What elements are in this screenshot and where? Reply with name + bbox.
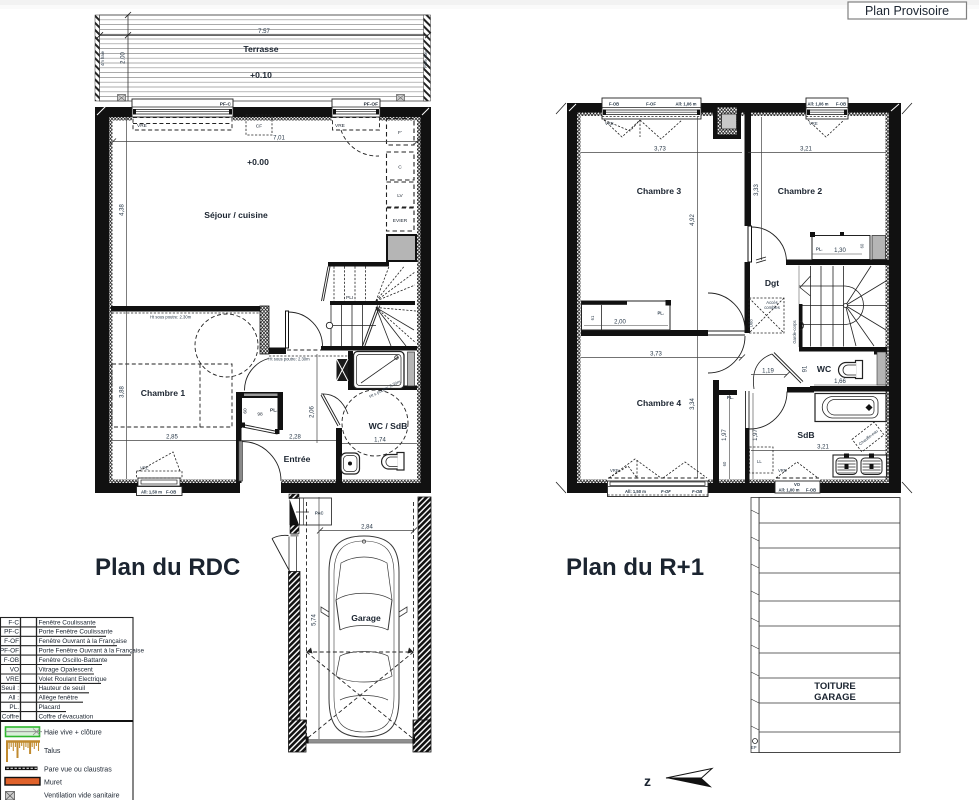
svg-text:All: 1,50 m: All: 1,50 m [625,489,646,494]
svg-text:Chambre 2: Chambre 2 [778,186,823,196]
svg-text:Muret: Muret [44,780,62,787]
svg-text:D88: D88 [749,319,754,327]
svg-text:VRE: VRE [610,468,619,473]
svg-text:Ht sous poutre: 2.30m: Ht sous poutre: 2.30m [150,315,192,320]
svg-text:Plan du RDC: Plan du RDC [95,554,240,581]
svg-text:3,21: 3,21 [817,445,829,451]
svg-text:TOITURE: TOITURE [814,681,856,692]
svg-text:Porte Fenêtre Ouvrant à la Fra: Porte Fenêtre Ouvrant à la Française [39,648,145,655]
svg-text:WC / SdB: WC / SdB [369,421,408,431]
svg-text:Seuil :: Seuil : [1,685,19,692]
svg-text:3,34: 3,34 [690,398,696,410]
svg-text:Hauteur de seuil: Hauteur de seuil [39,685,86,692]
svg-text:3,33: 3,33 [754,184,760,196]
svg-text:Séjour / cuisine: Séjour / cuisine [204,210,268,220]
svg-text:GARAGE: GARAGE [814,692,856,703]
svg-text:LV: LV [397,193,403,199]
svg-text:3,73: 3,73 [654,147,666,153]
svg-text:Allège fenêtre: Allège fenêtre [39,695,79,702]
svg-text:Coffre d'évacuation: Coffre d'évacuation [39,713,94,720]
svg-text:Fenêtre Ouvrant à la Française: Fenêtre Ouvrant à la Française [39,638,128,645]
svg-text:VRE: VRE [137,123,147,129]
svg-text:61: 61 [590,315,595,320]
svg-text:Fenêtre Coulissante: Fenêtre Coulissante [39,619,97,626]
svg-text:LL: LL [757,459,762,464]
svg-text:Plan du R+1: Plan du R+1 [566,554,704,581]
svg-text:PL.: PL. [270,408,277,414]
svg-text:Porte Fenêtre Coulissante: Porte Fenêtre Coulissante [39,629,114,636]
svg-text:Fenêtre Oscillo-Battante: Fenêtre Oscillo-Battante [39,657,108,664]
svg-text:EVIER: EVIER [393,218,408,224]
svg-text:Placard: Placard [39,704,61,711]
svg-text:5,74: 5,74 [312,614,318,626]
svg-text:VRE: VRE [335,123,345,129]
svg-text:Vitrage Opalescent: Vitrage Opalescent [39,666,93,673]
svg-text:PL.: PL. [657,311,664,316]
svg-text:98: 98 [257,412,263,418]
svg-text:60: 60 [722,461,727,466]
svg-text:Terrasse: Terrasse [243,44,278,54]
svg-text:PL.: PL. [816,247,823,252]
svg-text:60: 60 [243,408,249,414]
svg-text:3,21: 3,21 [800,147,812,153]
svg-text:All: 1,00 m: All: 1,00 m [779,488,800,493]
svg-text:PL.: PL. [9,704,19,711]
svg-text:VO: VO [10,666,19,673]
svg-text:Garage: Garage [351,613,381,623]
svg-text:F-OB: F-OB [609,102,619,107]
svg-text:2,06: 2,06 [310,406,316,418]
svg-text:Haie vive + clôture: Haie vive + clôture [44,730,102,737]
svg-text:1,66: 1,66 [834,379,846,385]
svg-text:2.00: 2.00 [121,52,127,64]
svg-text:CF: CF [256,124,262,130]
svg-text:1,19: 1,19 [762,369,774,375]
svg-text:PF-C: PF-C [4,629,19,636]
svg-text:1,74: 1,74 [374,438,386,444]
svg-text:PF-OF: PF-OF [364,102,378,108]
svg-text:2,28: 2,28 [289,435,301,441]
svg-text:4,38: 4,38 [120,204,126,216]
svg-text:F-OB: F-OB [166,490,176,495]
svg-text:Garde-corps: Garde-corps [792,320,797,343]
svg-text:VRE: VRE [6,676,19,683]
svg-text:7,01: 7,01 [273,136,285,142]
svg-text:+0.10: +0.10 [250,70,272,80]
svg-text:4m haie: 4m haie [100,50,105,66]
svg-text:Chambre 3: Chambre 3 [637,186,682,196]
svg-text:1,30: 1,30 [834,248,846,254]
svg-text:Chambre 4: Chambre 4 [637,398,682,408]
svg-text:Volet Roulant Electrique: Volet Roulant Electrique [39,676,108,683]
svg-text:Pare vue: Pare vue [423,51,428,68]
svg-text:VO: VO [794,482,801,487]
svg-text:All: 1,50 m: All: 1,50 m [141,490,162,495]
svg-text:F-OB: F-OB [806,488,816,493]
svg-text:1,97: 1,97 [753,429,759,441]
svg-text:F-OF: F-OF [4,638,19,645]
svg-text:PLI: PLI [346,295,353,301]
svg-text:combles: combles [764,305,780,310]
svg-text:F-OB: F-OB [692,489,702,494]
svg-text:60: 60 [860,243,865,248]
svg-text:VRE: VRE [809,121,818,126]
svg-text:Plan Provisoire: Plan Provisoire [865,4,949,18]
svg-text:WC: WC [817,364,831,374]
svg-text:91: 91 [803,365,809,372]
svg-text:Ht sous poutre: 2.30m: Ht sous poutre: 2.30m [268,357,310,362]
svg-text:Entrée: Entrée [284,454,311,464]
svg-text:F-OF: F-OF [661,489,671,494]
svg-text:F-OF: F-OF [646,102,656,107]
svg-text:F’: F’ [398,130,402,136]
svg-text:All: 1,06 m: All: 1,06 m [676,102,697,107]
svg-text:3,73: 3,73 [650,352,662,358]
svg-text:7.57: 7.57 [258,29,270,35]
svg-text:+0.00: +0.00 [247,157,269,167]
svg-text:PF-OF: PF-OF [0,648,19,655]
svg-text:F-OB: F-OB [4,657,19,664]
svg-text:Dgt: Dgt [765,278,779,288]
svg-text:F-OB: F-OB [836,102,846,107]
svg-text:All :: All : [8,695,19,702]
svg-text:All: 1,06 m: All: 1,06 m [808,102,829,107]
svg-text:2,00: 2,00 [614,320,626,326]
svg-text:C: C [398,165,402,171]
svg-text:Pare vue ou claustras: Pare vue ou claustras [44,767,112,774]
svg-text:EP: EP [751,745,757,750]
svg-text:SdB: SdB [797,430,814,440]
svg-text:2,84: 2,84 [361,525,373,531]
svg-text:3,88: 3,88 [120,386,126,398]
svg-text:F-C: F-C [8,619,19,626]
svg-text:Talus: Talus [44,748,61,755]
svg-text:1,97: 1,97 [722,429,728,441]
svg-text:4,92: 4,92 [690,214,696,226]
svg-text:PF-C: PF-C [220,102,232,108]
svg-text:PL.: PL. [727,395,734,400]
svg-text:Ventilation vide sanitaire: Ventilation vide sanitaire [44,793,120,800]
svg-text:z: z [644,773,651,789]
svg-text:2,85: 2,85 [166,435,178,441]
svg-text:Chambre 1: Chambre 1 [141,388,186,398]
svg-text:Coffre: Coffre [2,713,20,720]
